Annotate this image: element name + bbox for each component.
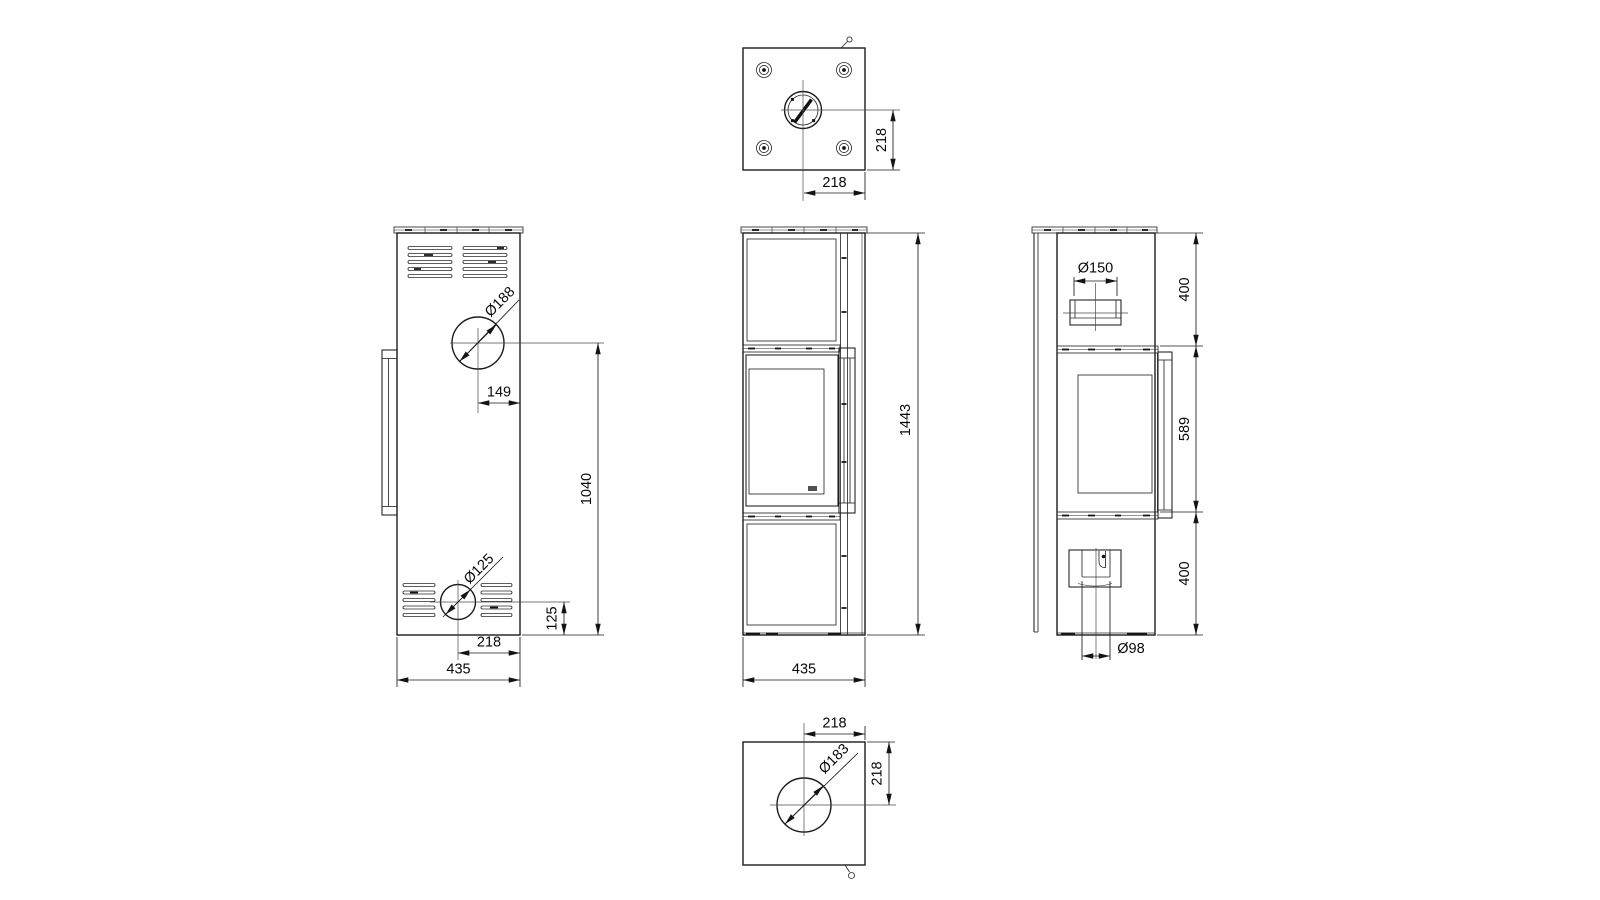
dim-label: 218 [870, 761, 886, 785]
brand-logo-mark [808, 486, 817, 491]
dim-label: 218 [822, 716, 846, 732]
dim-label: 400 [1177, 277, 1193, 301]
dim-label: 400 [1177, 561, 1193, 585]
dim-label: 1443 [898, 404, 914, 436]
dim-label: Ø150 [1078, 261, 1113, 277]
dim-label: 435 [792, 662, 816, 678]
dim-label: Ø98 [1117, 641, 1144, 657]
dim-label: 435 [446, 662, 470, 678]
dim-label: 218 [822, 175, 846, 191]
dim-label: 125 [545, 606, 561, 630]
dim-label: 1040 [579, 473, 595, 505]
dim-label: 218 [477, 635, 501, 651]
stove-orthographic-drawing: 218 218 [0, 0, 1600, 900]
dim-label: 218 [874, 128, 890, 152]
technical-drawing-sheet: 218 218 [0, 0, 1600, 900]
sheet-background [0, 0, 1600, 900]
dim-label: 589 [1177, 417, 1193, 441]
dim-label: 149 [487, 385, 511, 401]
